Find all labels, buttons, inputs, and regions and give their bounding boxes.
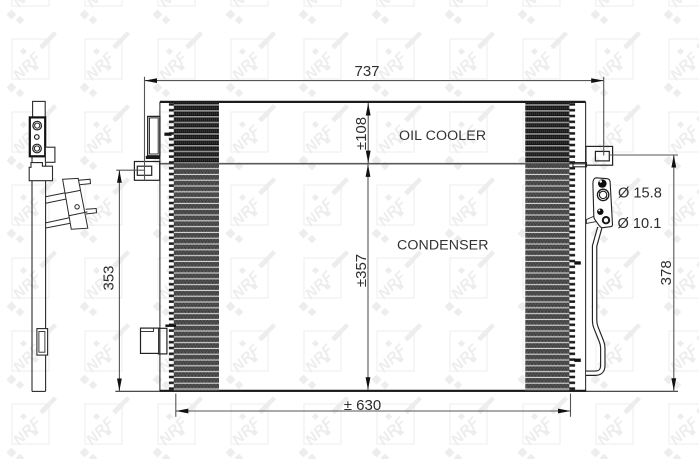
svg-text:OIL COOLER: OIL COOLER bbox=[399, 128, 486, 144]
svg-text:± 630: ± 630 bbox=[344, 397, 381, 414]
svg-text:±108: ±108 bbox=[353, 117, 370, 150]
svg-text:±357: ±357 bbox=[353, 254, 370, 287]
svg-text:Ø 10.1: Ø 10.1 bbox=[618, 216, 662, 232]
svg-text:CONDENSER: CONDENSER bbox=[397, 238, 489, 254]
svg-text:Ø 15.8: Ø 15.8 bbox=[618, 185, 662, 201]
svg-text:353: 353 bbox=[101, 265, 118, 290]
svg-text:737: 737 bbox=[354, 63, 379, 80]
svg-text:378: 378 bbox=[658, 260, 675, 285]
